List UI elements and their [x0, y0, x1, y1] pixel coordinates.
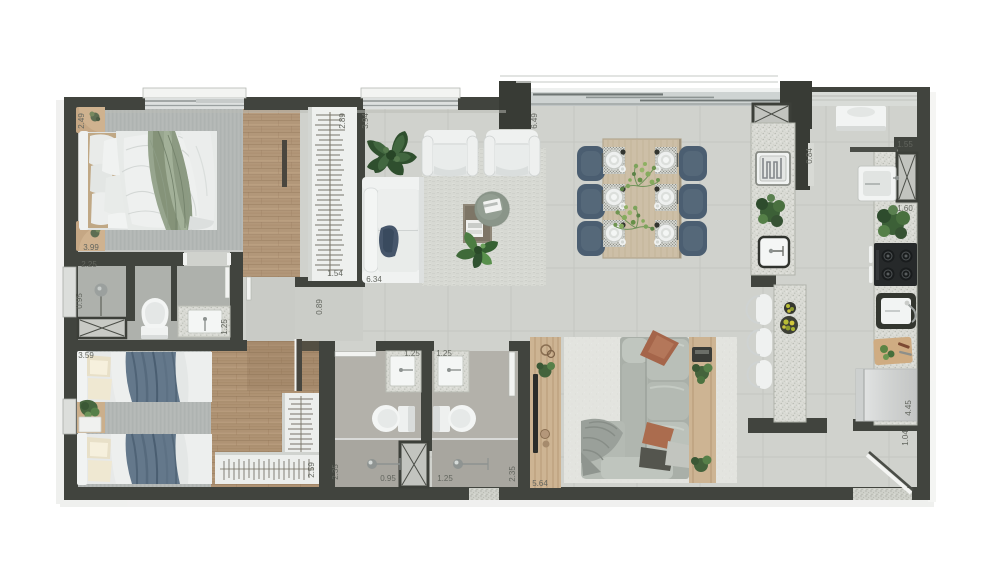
svg-text:0.95: 0.95: [75, 293, 84, 309]
svg-text:2.89: 2.89: [338, 113, 347, 129]
svg-text:1.54: 1.54: [327, 269, 343, 278]
svg-text:1.60: 1.60: [897, 204, 913, 213]
svg-text:0.84: 0.84: [805, 148, 814, 164]
svg-text:5.64: 5.64: [532, 479, 548, 488]
svg-text:3.94: 3.94: [361, 113, 370, 129]
svg-text:1.25: 1.25: [404, 349, 420, 358]
svg-text:1.25: 1.25: [220, 319, 229, 335]
svg-text:3.99: 3.99: [83, 243, 99, 252]
svg-text:6.49: 6.49: [530, 113, 539, 129]
svg-text:2.59: 2.59: [307, 462, 316, 478]
svg-text:1.25: 1.25: [437, 474, 453, 483]
svg-text:2.49: 2.49: [77, 113, 86, 129]
svg-text:2.35: 2.35: [508, 466, 517, 482]
svg-text:0.95: 0.95: [380, 474, 396, 483]
svg-text:1.04: 1.04: [901, 430, 910, 446]
svg-text:6.34: 6.34: [366, 275, 382, 284]
svg-text:2.25: 2.25: [81, 260, 97, 269]
svg-text:1.55: 1.55: [897, 140, 913, 149]
svg-text:2.35: 2.35: [331, 464, 340, 480]
svg-text:0.89: 0.89: [315, 299, 324, 315]
svg-text:3.59: 3.59: [78, 351, 94, 360]
svg-text:4.45: 4.45: [904, 400, 913, 416]
svg-text:1.25: 1.25: [436, 349, 452, 358]
